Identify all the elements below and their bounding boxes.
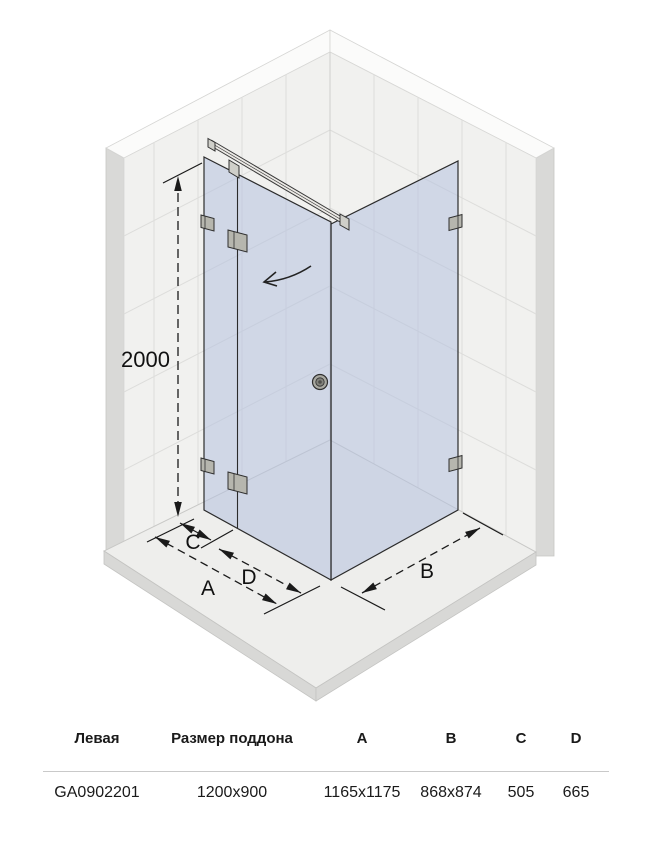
cell-dim-a: 1165x1175 (312, 784, 412, 802)
dim-label-d: D (241, 566, 256, 589)
cell-dim-c: 505 (490, 784, 552, 802)
dim-label-c: C (185, 531, 200, 554)
door-knob-icon (313, 375, 328, 390)
right-wall-side-face (536, 148, 554, 556)
table-header-dim-c: C (490, 730, 552, 747)
dim-label-a: A (201, 577, 215, 600)
table-header-tray-size: Размер поддона (152, 730, 312, 747)
glass-front-panel-left (204, 157, 331, 580)
spec-table: Левая Размер поддона A B C D GA0902201 1… (0, 712, 650, 802)
dim-label-b: B (420, 560, 434, 583)
isometric-drawing: 2000 C D A B (0, 0, 650, 712)
dim-label-height: 2000 (121, 347, 170, 372)
glass-side-panel-right (331, 161, 458, 580)
table-separator (43, 771, 609, 772)
cell-tray-size: 1200x900 (152, 784, 312, 802)
cell-dim-d: 665 (552, 784, 600, 802)
spec-table-header-row: Левая Размер поддона A B C D (42, 730, 650, 747)
table-header-model-side: Левая (42, 730, 152, 747)
shower-enclosure-diagram: 2000 C D A B (0, 0, 650, 712)
table-header-dim-d: D (552, 730, 600, 747)
spec-table-value-row: GA0902201 1200x900 1165x1175 868x874 505… (42, 784, 650, 802)
table-header-dim-a: A (312, 730, 412, 747)
table-header-dim-b: B (412, 730, 490, 747)
cell-article-number: GA0902201 (42, 784, 152, 802)
cell-dim-b: 868x874 (412, 784, 490, 802)
